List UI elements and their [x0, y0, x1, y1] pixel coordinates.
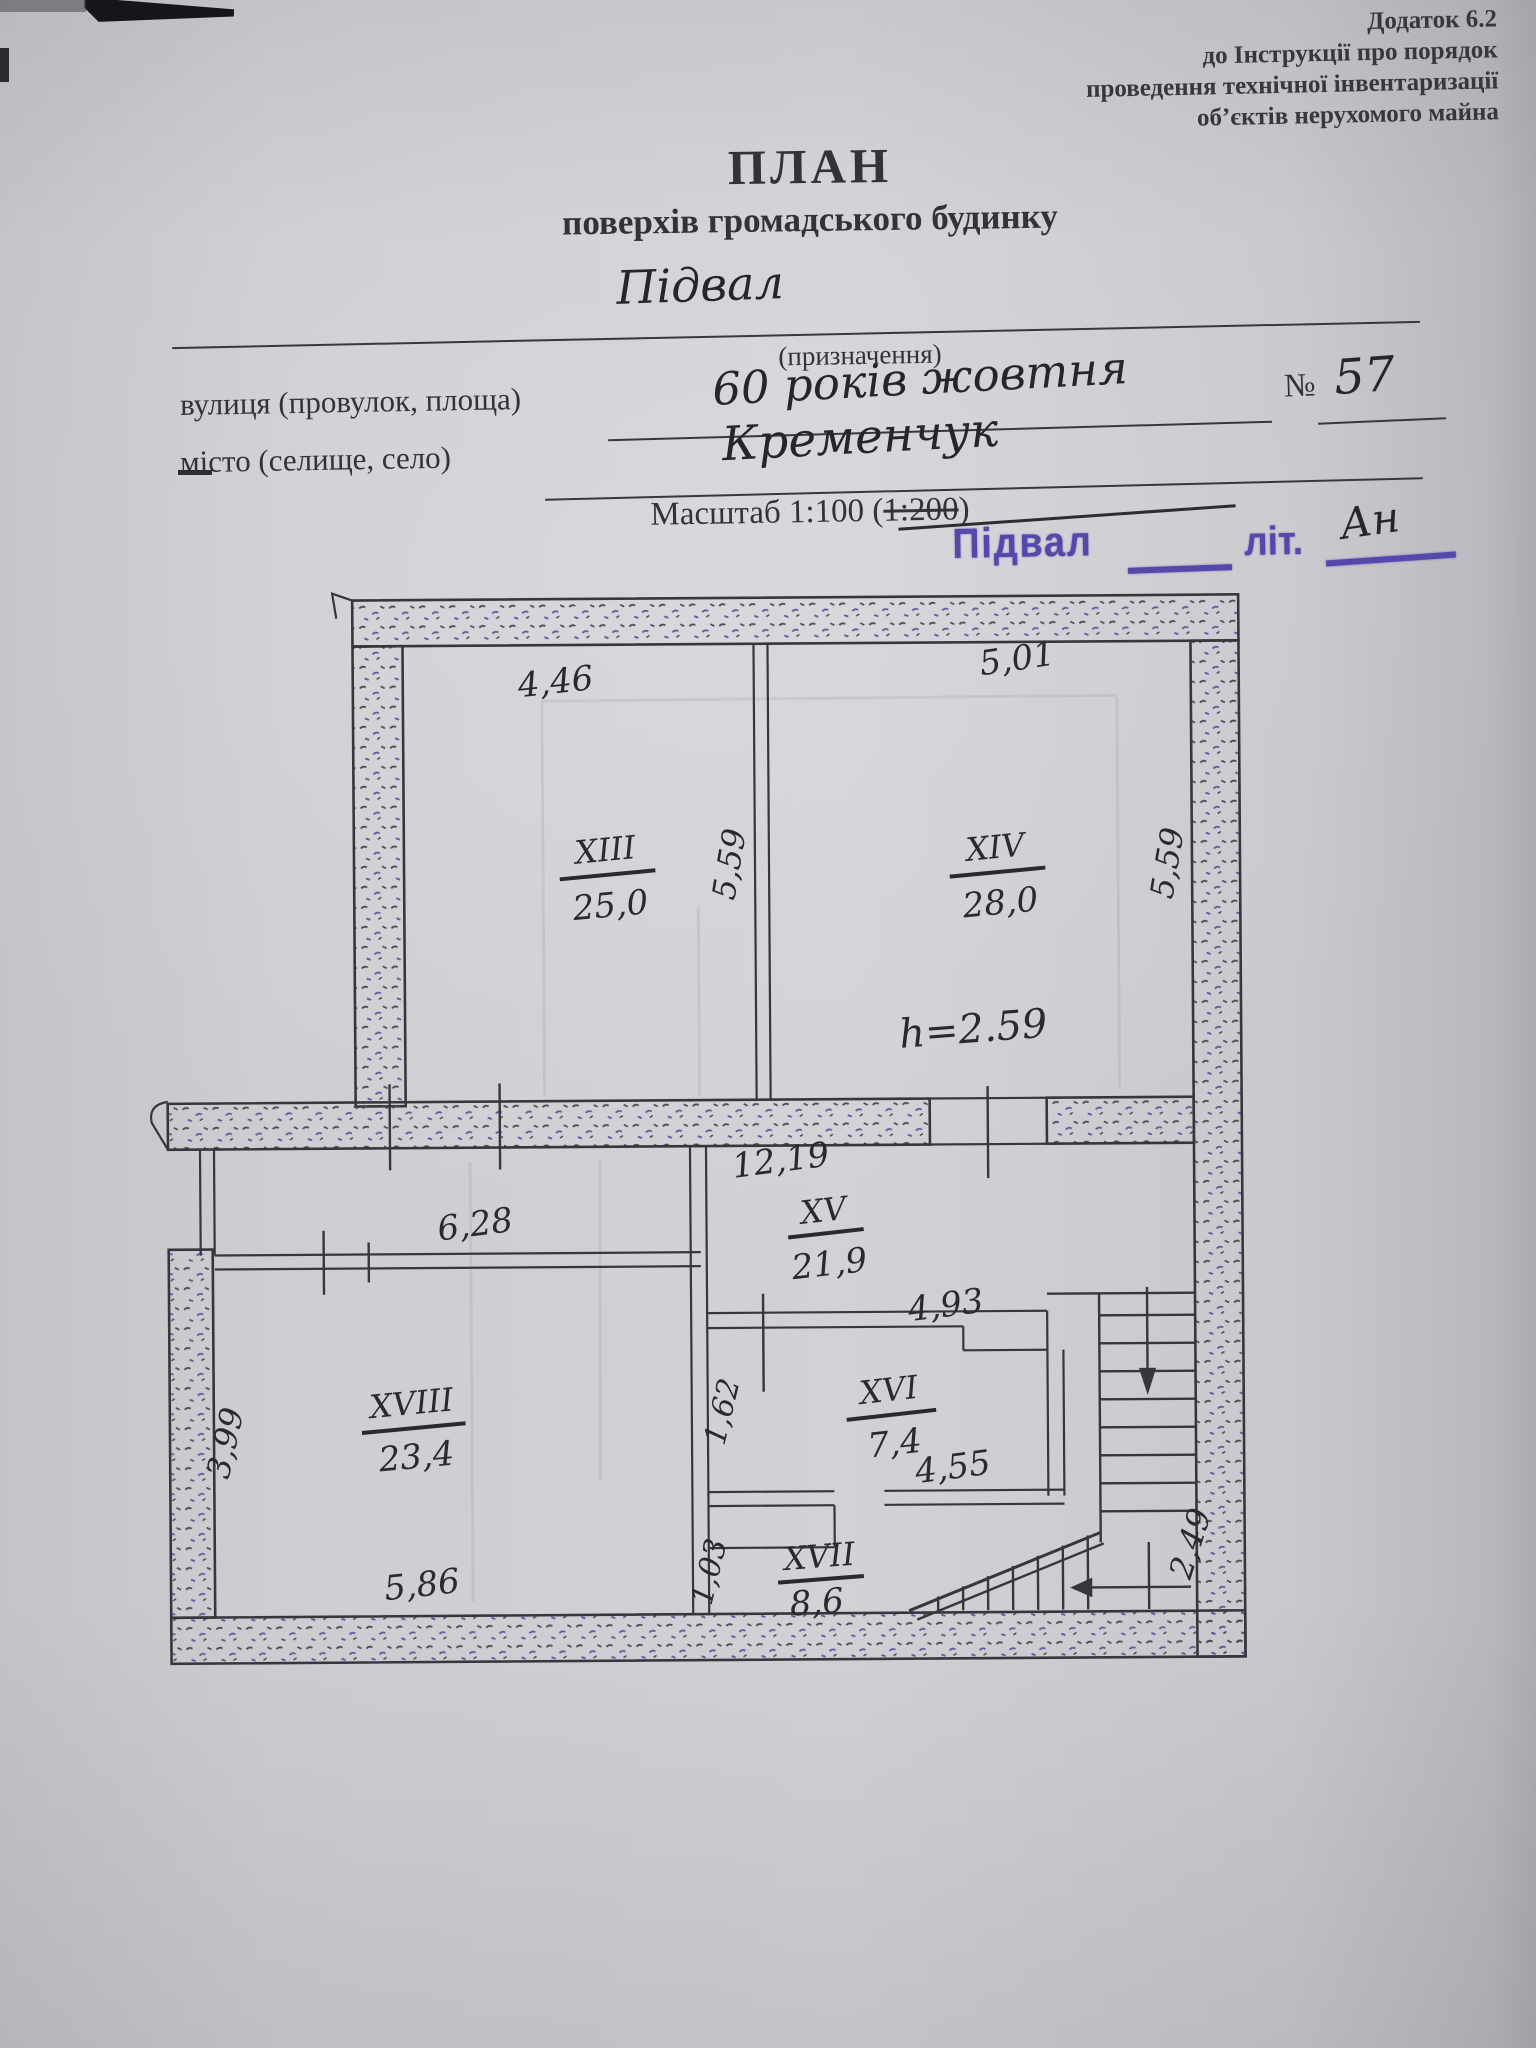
dim-xvi-left-depth: 1,62 — [698, 1375, 748, 1448]
city-label: місто (селище, село) — [180, 440, 452, 481]
room-label-xviii: XVIII 23,4 — [358, 1379, 470, 1481]
dim-xviii-top-width: 6,28 — [435, 1200, 515, 1249]
wall-bottom — [171, 1610, 1245, 1663]
house-number-value: 57 — [1332, 346, 1397, 406]
room-xv-area: 21,9 — [789, 1240, 870, 1288]
room-label-xiii: XIII 25,0 — [556, 826, 661, 930]
paper-edge-shadow — [0, 0, 86, 12]
dim-upper-mid-depth: 5,59 — [704, 826, 753, 903]
wall-middle-right — [1047, 1097, 1194, 1144]
page-subtitle: поверхів громадського будинку — [330, 193, 1290, 246]
stamp-letter-underline — [1326, 551, 1456, 566]
appendix-note: Додаток 6.2 до Інструкції про порядок пр… — [857, 3, 1499, 140]
dim-upper-right-depth: 5,59 — [1142, 825, 1191, 902]
room-xviii-area: 23,4 — [376, 1434, 456, 1481]
city-row-dash — [178, 470, 212, 475]
room-xiv-area: 28,0 — [960, 879, 1040, 926]
room-xvi-id: XVI — [854, 1368, 921, 1413]
room-xvii-area: 8,6 — [788, 1581, 845, 1625]
room-label-xiv: XIV 28,0 — [946, 824, 1051, 928]
room-xiii-id: XIII — [570, 828, 638, 872]
dim-xvi-bottom-width: 4,55 — [912, 1443, 993, 1493]
house-number-underline — [1318, 417, 1446, 425]
room-xvii-id: XVII — [779, 1535, 857, 1579]
paper-corner-artifact — [84, 0, 235, 27]
room-label-xvii: XVII 8,6 — [775, 1534, 867, 1625]
scanned-document: Додаток 6.2 до Інструкції про порядок пр… — [0, 0, 1536, 2048]
stairs-direction-arrowhead — [1141, 1369, 1155, 1391]
house-number-sign: № — [1283, 367, 1316, 405]
dim-xvi-top-width: 4,93 — [905, 1281, 986, 1331]
purpose-value: Підвал — [419, 248, 981, 322]
paper-edge-mark — [0, 48, 9, 82]
wall-right — [1190, 640, 1245, 1656]
wall-left-upper — [352, 646, 405, 1106]
outer-walls — [164, 594, 1245, 1663]
scale-prefix: Масштаб 1:100 ( — [650, 493, 884, 533]
stamp-letter-value: Ан — [1337, 492, 1403, 549]
room-xiii-area: 25,0 — [570, 882, 650, 929]
room-xiv-id: XIV — [961, 825, 1029, 869]
page-title: ПЛАН — [330, 131, 1291, 201]
stairs-bottom-arrow-line — [1075, 1587, 1191, 1588]
floor-plan: 4,46 5,01 5,59 5,59 12,19 6,28 4,93 4,55… — [126, 556, 1314, 1744]
wall-top — [352, 594, 1238, 646]
dim-xviii-bottom-width: 5,86 — [382, 1561, 462, 1609]
dim-upper-left-width: 4,46 — [515, 658, 596, 706]
ceiling-height-note: h=2.59 — [898, 1001, 1049, 1058]
scale-struck-value: 1:200 — [883, 491, 959, 528]
room-xvi-area: 7,4 — [866, 1421, 924, 1467]
room-label-xv: XV 21,9 — [783, 1187, 870, 1288]
stairs-bottom-arrowhead — [1073, 1579, 1091, 1595]
room-xviii-id: XVIII — [365, 1380, 456, 1426]
street-label: вулиця (провулок, площа) — [180, 381, 522, 423]
room-xv-id: XV — [795, 1189, 851, 1233]
